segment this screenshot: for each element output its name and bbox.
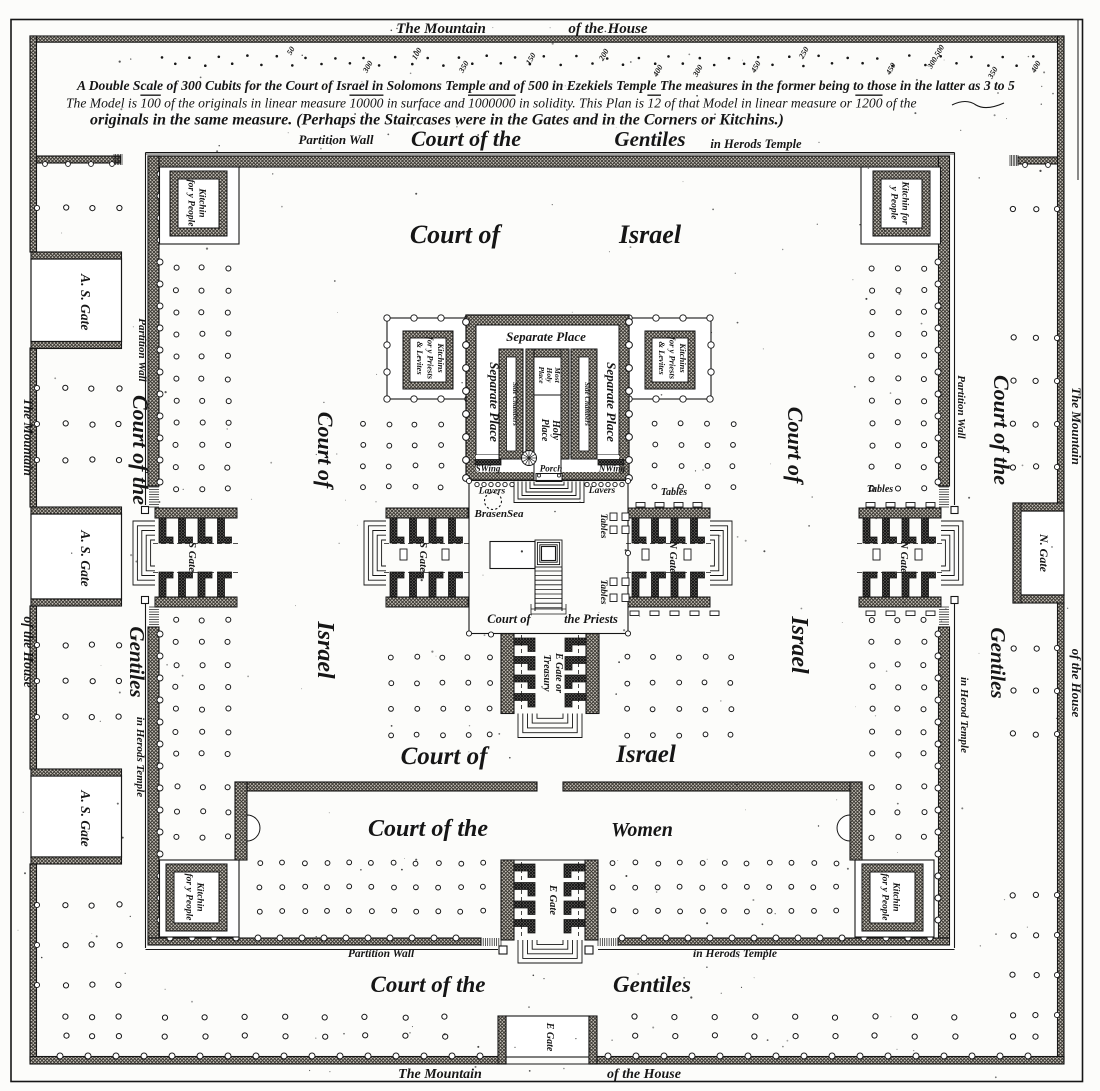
svg-text:Court of: Court of (401, 743, 491, 770)
svg-text:NWing: NWing (598, 464, 626, 474)
svg-text:Kitchin for: Kitchin for (900, 180, 910, 224)
svg-text:Side Chambers: Side Chambers (583, 382, 591, 426)
svg-text:for y People: for y People (184, 874, 194, 922)
svg-text:Separate Place: Separate Place (506, 329, 586, 344)
svg-text:of the House: of the House (607, 1067, 681, 1082)
svg-text:Court of: Court of (783, 407, 808, 486)
svg-text:E Gate: E Gate (547, 884, 558, 915)
svg-text:Gentiles: Gentiles (613, 972, 691, 997)
svg-text:Israel: Israel (615, 741, 676, 768)
svg-text:of the House: of the House (1069, 649, 1084, 718)
svg-text:Court of: Court of (487, 612, 532, 626)
svg-text:Lavers: Lavers (588, 486, 616, 496)
svg-text:Kitchins: Kitchins (436, 342, 446, 373)
svg-text:y People: y People (889, 186, 899, 221)
svg-text:of the House: of the House (568, 21, 648, 37)
svg-text:The Mountain: The Mountain (21, 398, 36, 476)
svg-text:N. Gate: N. Gate (1037, 533, 1051, 573)
svg-text:the Priests: the Priests (564, 612, 618, 626)
svg-text:Tables: Tables (661, 487, 687, 498)
svg-text:Tables: Tables (598, 514, 608, 539)
svg-text:Gentiles: Gentiles (986, 627, 1010, 698)
svg-text:Separate Place: Separate Place (604, 362, 619, 442)
svg-text:E Gate: E Gate (544, 1022, 555, 1052)
svg-text:Court of: Court of (410, 220, 503, 249)
svg-text:for y Priests: for y Priests (426, 337, 436, 380)
svg-text:in Herods Temple: in Herods Temple (710, 137, 802, 151)
svg-text:in Herods Temple: in Herods Temple (693, 948, 777, 960)
svg-text:SWing: SWing (476, 464, 501, 474)
svg-text:Gentiles: Gentiles (125, 626, 149, 697)
svg-text:of the House: of the House (21, 616, 36, 687)
svg-text:Court of the: Court of the (368, 816, 488, 842)
svg-text:Court of the: Court of the (128, 395, 153, 505)
svg-text:Kitchin: Kitchin (197, 187, 207, 217)
svg-text:Tables: Tables (867, 484, 893, 495)
svg-text:for y People: for y People (880, 874, 890, 922)
svg-text:in Herods Temple: in Herods Temple (134, 717, 146, 797)
svg-text:Place: Place (537, 366, 546, 384)
svg-text:Kitchins: Kitchins (678, 342, 688, 373)
svg-text:Treasury: Treasury (541, 655, 552, 692)
svg-text:A. S. Gate: A. S. Gate (78, 273, 93, 330)
svg-text:Court of: Court of (313, 412, 338, 491)
svg-text:Israel: Israel (786, 615, 812, 674)
svg-text:Kitchin: Kitchin (891, 881, 901, 911)
svg-text:The Mountain: The Mountain (396, 21, 486, 37)
svg-text:in Herod Temple: in Herod Temple (958, 677, 970, 753)
svg-text:for y People: for y People (186, 180, 196, 228)
svg-text:Court of the: Court of the (370, 972, 485, 997)
svg-text:for y Priests: for y Priests (668, 337, 678, 380)
svg-text:Israel: Israel (312, 620, 338, 679)
svg-text:Court of the: Court of the (411, 126, 521, 151)
svg-text:Israel: Israel (618, 220, 682, 249)
svg-text:E Gate or: E Gate or (553, 652, 564, 693)
svg-text:& Levites: & Levites (657, 341, 667, 375)
svg-text:Partition Wall: Partition Wall (298, 132, 373, 147)
svg-text:S Gate: S Gate (417, 542, 429, 572)
svg-text:Tables: Tables (598, 580, 608, 605)
svg-text:Porch: Porch (540, 464, 563, 474)
svg-text:S Gate: S Gate (186, 542, 198, 572)
svg-text:Gentiles: Gentiles (614, 127, 685, 151)
svg-text:Partition Wall: Partition Wall (955, 375, 967, 439)
svg-text:Kitchin: Kitchin (195, 881, 205, 911)
svg-text:Partition Wall: Partition Wall (348, 948, 415, 960)
svg-text:Side Chambers: Side Chambers (511, 382, 519, 426)
svg-text:N Gate: N Gate (898, 540, 910, 573)
svg-text:Court of the: Court of the (989, 375, 1014, 485)
svg-text:The Mountain: The Mountain (398, 1067, 482, 1082)
svg-text:Partition Wall: Partition Wall (136, 318, 148, 382)
svg-text:A. S. Gate: A. S. Gate (78, 789, 93, 846)
svg-text:BrasenSea: BrasenSea (474, 508, 524, 520)
svg-text:Place: Place (539, 419, 550, 442)
svg-text:A Double Scale of 300 Cubits f: A Double Scale of 300 Cubits for the Cou… (76, 78, 1015, 93)
svg-text:The Mountain: The Mountain (1069, 387, 1084, 465)
svg-text:Women: Women (611, 819, 673, 841)
svg-text:Lavers: Lavers (478, 487, 506, 497)
svg-text:The Model is 100 of the origin: The Model is 100 of the originals in lin… (66, 96, 917, 111)
svg-text:& Levites: & Levites (415, 341, 425, 375)
svg-text:N Gate: N Gate (667, 540, 679, 573)
svg-text:A. S. Gate: A. S. Gate (78, 529, 93, 586)
svg-text:Holy: Holy (550, 419, 561, 441)
